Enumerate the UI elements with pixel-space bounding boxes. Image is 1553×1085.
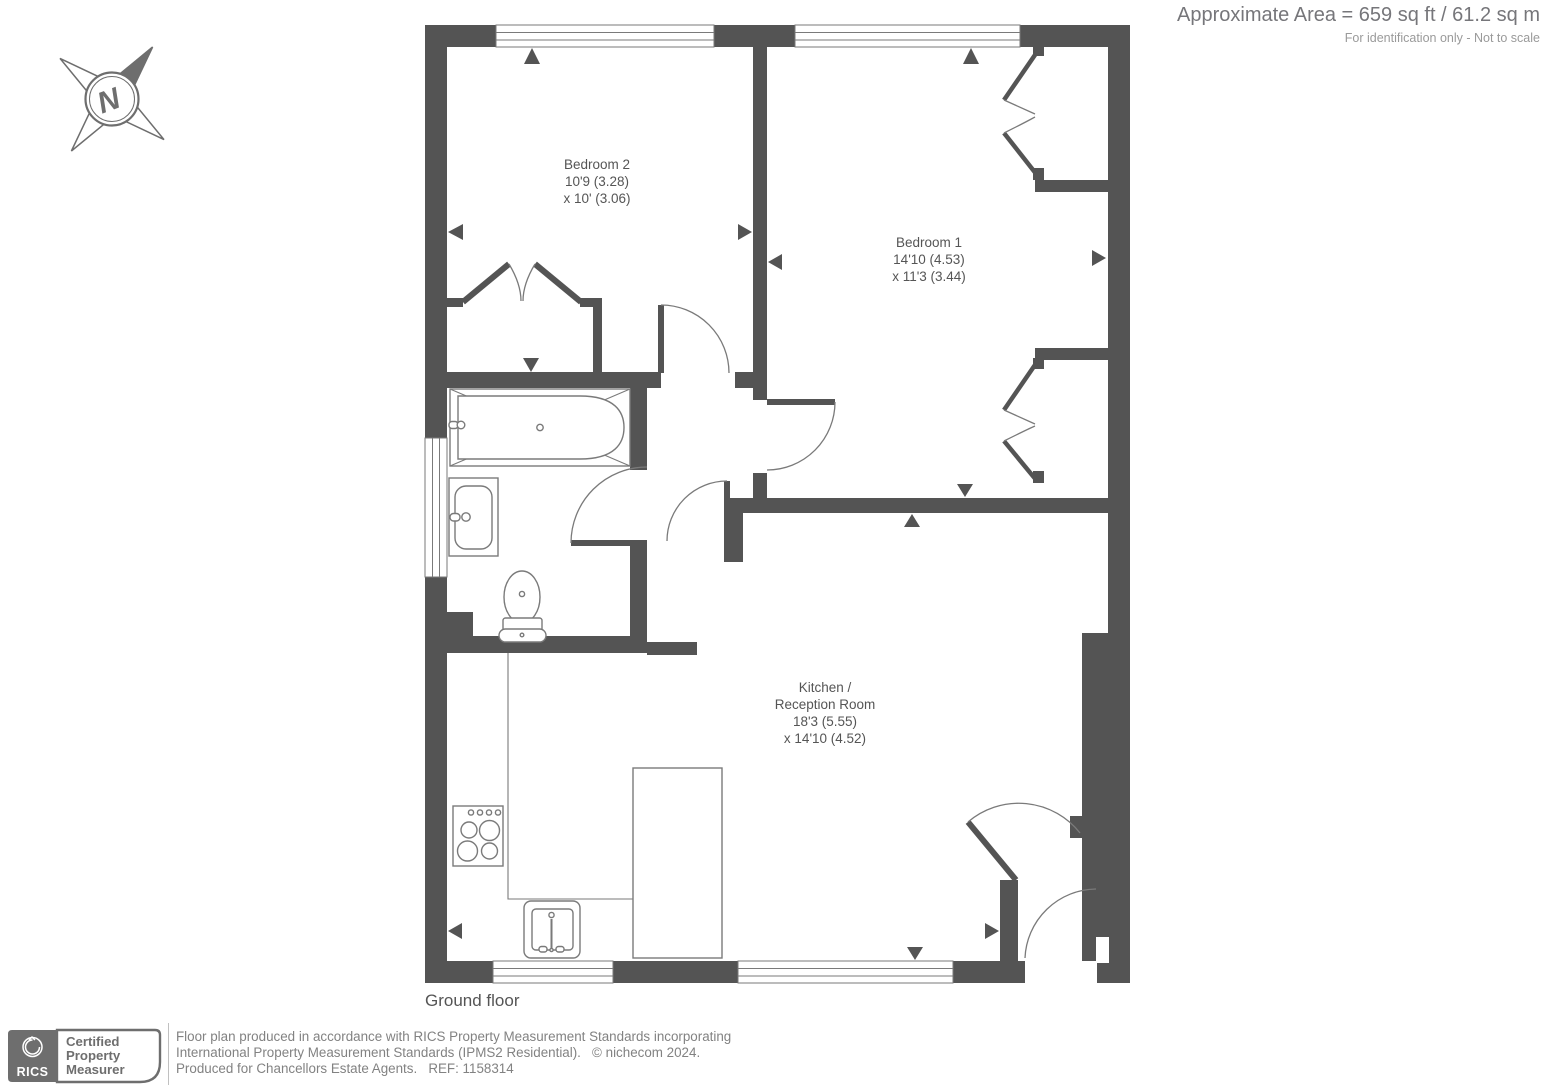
rics-badge: RICS Certified Property Measurer	[8, 1030, 160, 1082]
arrow-right-icon	[1092, 250, 1106, 266]
wall-bedroom2-bottom	[447, 372, 661, 388]
footer-line: International Property Measurement Stand…	[176, 1045, 700, 1060]
bedroom2-door-arc	[661, 305, 729, 373]
closet-double-door-right-leaf	[535, 264, 581, 302]
arrow-down-icon	[907, 947, 923, 960]
badge-label-line: Property	[66, 1048, 121, 1063]
wall-bedroom2-bottom-stub	[735, 372, 753, 388]
room-label-bedroom1: Bedroom 1 14'10 (4.53) x 11'3 (3.44)	[892, 235, 966, 284]
wall-bath-bottom	[447, 636, 647, 653]
wall-right-thick	[1082, 633, 1108, 961]
arrow-right-icon	[985, 923, 999, 939]
header: Approximate Area = 659 sq ft / 61.2 sq m…	[1177, 4, 1540, 45]
entry-inner-door-leaf	[968, 822, 1016, 880]
room-name: Reception Room	[775, 697, 876, 712]
bathroom-door-arc	[571, 467, 647, 543]
floor-label: Ground floor	[425, 991, 520, 1010]
badge-label-line: Measurer	[66, 1062, 125, 1077]
arrow-left-icon	[448, 224, 463, 240]
hob-icon	[453, 806, 503, 866]
closet-double-door-left-arc	[509, 264, 521, 301]
approximate-area-text: Approximate Area = 659 sq ft / 61.2 sq m	[1177, 4, 1540, 26]
rics-brand-text: RICS	[17, 1065, 49, 1079]
kitchen-fixtures	[453, 653, 722, 958]
floorplan-canvas: N Approximate Area = 659 sq ft / 61.2 sq…	[0, 0, 1553, 1085]
closet1-bifold-top-leaf	[1004, 52, 1037, 100]
closet2-bifold-top-leaf	[1004, 362, 1037, 410]
kitchen-counter-line	[508, 653, 633, 899]
wall-left-pier	[447, 612, 473, 653]
basin-icon	[449, 478, 498, 556]
arrow-down-icon	[957, 484, 973, 497]
kitchen-sink-icon	[524, 901, 580, 958]
arrow-left-icon	[448, 923, 462, 939]
room-label-bedroom2: Bedroom 2 10'9 (3.28) x 10' (3.06)	[563, 157, 630, 206]
room-dim: x 14'10 (4.52)	[784, 731, 866, 746]
room-name: Bedroom 2	[564, 157, 630, 172]
kitchen-peninsula	[633, 768, 722, 958]
footer-line: Produced for Chancellors Estate Agents. …	[176, 1061, 514, 1076]
toilet-icon	[499, 571, 546, 642]
closet1-bifold-arc-b	[1004, 117, 1035, 133]
window-bedroom2-top	[496, 25, 714, 47]
wall-bedroom-divider	[753, 47, 767, 400]
badge-label-line: Certified	[66, 1034, 120, 1049]
entry-inner-door-arc	[968, 803, 1080, 833]
closet-double-door-left-leaf	[463, 264, 509, 302]
wall-bath-right-upper	[630, 388, 647, 470]
closet1-bifold-bottom-leaf	[1004, 133, 1037, 175]
arrow-down-icon	[523, 358, 539, 372]
bathtub-icon	[449, 389, 630, 466]
footer-disclaimer: Floor plan produced in accordance with R…	[176, 1029, 731, 1076]
arrow-right-icon	[738, 224, 752, 240]
wall-entry-stub	[1070, 816, 1084, 838]
closet1-bifold-arc-a	[1004, 100, 1035, 114]
arrow-up-icon	[524, 48, 540, 64]
window-bedroom1-top	[795, 25, 1020, 47]
walls	[425, 25, 1130, 983]
arrow-up-icon	[904, 514, 920, 527]
arrow-left-icon	[768, 254, 782, 270]
room-dim: 14'10 (4.53)	[893, 252, 965, 267]
arrow-up-icon	[963, 48, 979, 64]
wall-closet-stub-left	[447, 298, 463, 307]
wall-entry-column	[1000, 880, 1018, 961]
door-openings	[1025, 937, 1109, 983]
disclaimer-text: For identification only - Not to scale	[1345, 31, 1540, 45]
room-dim: 10'9 (3.28)	[565, 174, 629, 189]
wall-right	[1108, 25, 1130, 983]
entrance-opening	[1025, 961, 1097, 983]
room-name: Kitchen /	[799, 680, 852, 695]
window-kitchen-left	[493, 961, 613, 983]
hall-kitchen-door-arc	[667, 481, 727, 541]
room-dim: 18'3 (5.55)	[793, 714, 857, 729]
window-bathroom-left	[425, 438, 447, 577]
closet-double-door-right-arc	[523, 264, 535, 301]
wall-divider-stub	[753, 473, 767, 500]
room-dim: x 11'3 (3.44)	[892, 269, 966, 284]
compass-north-icon: N	[60, 47, 164, 151]
wall-bedroom1-bottom	[724, 498, 1108, 513]
floorplan-page: N Approximate Area = 659 sq ft / 61.2 sq…	[0, 0, 1553, 1085]
bathroom-fixtures	[449, 389, 630, 642]
wall-closet2-top	[1035, 348, 1108, 360]
room-name: Bedroom 1	[896, 235, 962, 250]
closet2-bifold-arc-a	[1004, 410, 1035, 424]
window-kitchen-right	[738, 961, 953, 983]
footer-line: Floor plan produced in accordance with R…	[176, 1029, 731, 1044]
room-label-kitchen-reception: Kitchen / Reception Room 18'3 (5.55) x 1…	[775, 680, 876, 746]
door-arcs	[509, 100, 1096, 958]
entrance-frame-slot	[1096, 937, 1109, 963]
closet2-bifold-bottom-leaf	[1004, 441, 1037, 481]
closet2-bifold-arc-b	[1004, 426, 1035, 441]
wall-bath-bottom-ext	[647, 642, 697, 655]
wall-closet1-bottom	[1035, 180, 1108, 192]
bedroom1-door-arc	[767, 402, 835, 470]
room-dim: x 10' (3.06)	[563, 191, 630, 206]
wall-closet-right	[593, 298, 602, 372]
